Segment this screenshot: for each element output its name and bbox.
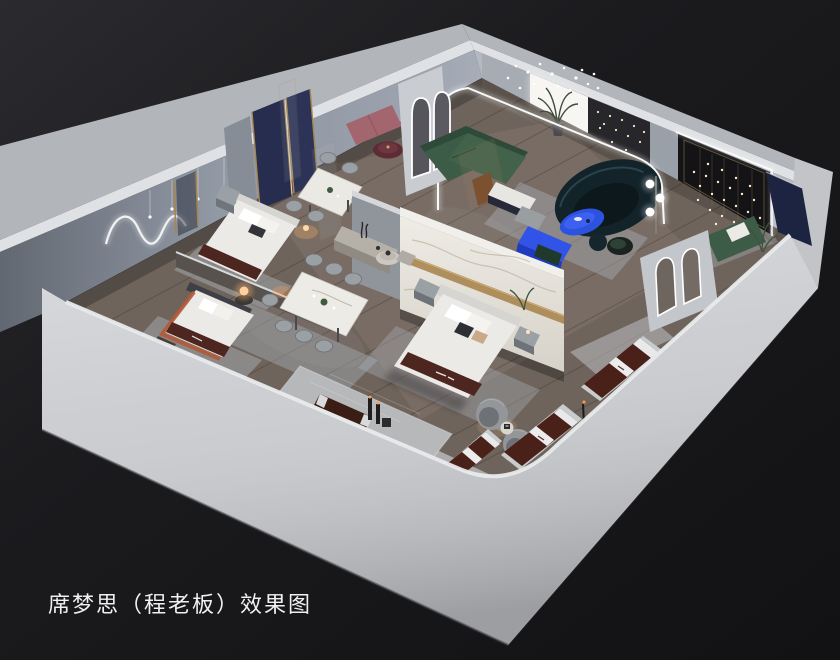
render-image: 席梦思（程老板）效果图 [0, 0, 840, 660]
cylinder-lamp-1 [368, 398, 372, 420]
dining1-glass-1 [333, 307, 336, 310]
dining1-plant [321, 299, 328, 306]
arch-mirror-3 [656, 258, 676, 316]
doorway-opening [176, 171, 198, 236]
showroom-render-svg: 席梦思（程老板）效果图 [0, 0, 840, 660]
cylinder-lamp-2 [376, 404, 380, 424]
blue-table-decor [574, 217, 582, 221]
blue-table-vase [586, 219, 590, 223]
dark-armchair-seat [610, 239, 626, 249]
console-bowl [376, 246, 380, 250]
bed2-orb-lamp [240, 287, 249, 296]
side-table-logo-cube [504, 424, 510, 429]
arch-mirror-1 [412, 98, 430, 178]
arch-mirror-single [398, 66, 450, 196]
barrel-chair-1-seat [479, 407, 499, 427]
cylinder-lamp-2-tip [377, 402, 380, 405]
table-decor-gold [387, 146, 390, 149]
arch-mirror-4 [682, 249, 701, 304]
round-table-sculpture [386, 251, 391, 256]
dining2-plant [327, 187, 333, 193]
dark-cube-stool [382, 418, 391, 427]
bed3-nightstand-lamp [526, 330, 530, 334]
md1-lamp-tip [583, 401, 586, 404]
dining2-glass [337, 195, 340, 198]
bed1-lamp [303, 225, 309, 231]
caption-text: 席梦思（程老板）效果图 [48, 592, 312, 617]
cylinder-lamp-1-tip [369, 396, 372, 399]
teal-ottoman [589, 233, 607, 251]
dining1-glass-2 [313, 295, 316, 298]
